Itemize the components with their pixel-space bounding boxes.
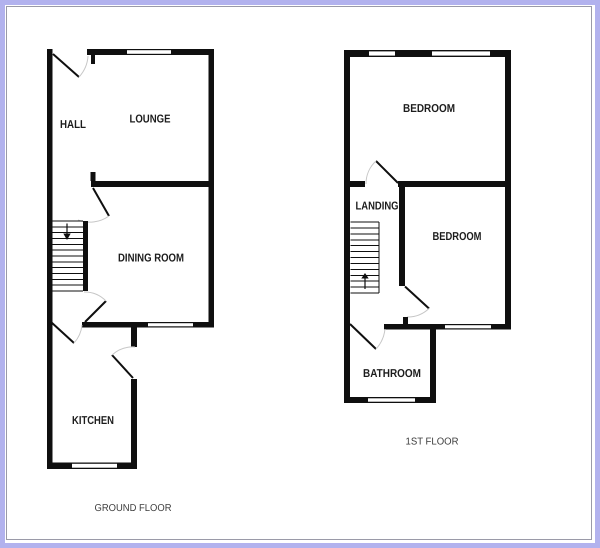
svg-text:BEDROOM: BEDROOM: [433, 231, 482, 243]
svg-text:LANDING: LANDING: [356, 201, 399, 213]
svg-text:1ST FLOOR: 1ST FLOOR: [406, 437, 459, 448]
svg-text:KITCHEN: KITCHEN: [72, 415, 114, 427]
svg-text:HALL: HALL: [60, 119, 86, 131]
svg-text:GROUND FLOOR: GROUND FLOOR: [95, 503, 172, 514]
svg-text:DINING ROOM: DINING ROOM: [118, 253, 184, 265]
svg-text:BATHROOM: BATHROOM: [363, 368, 421, 380]
svg-text:BEDROOM: BEDROOM: [403, 103, 455, 115]
svg-text:LOUNGE: LOUNGE: [130, 114, 171, 126]
